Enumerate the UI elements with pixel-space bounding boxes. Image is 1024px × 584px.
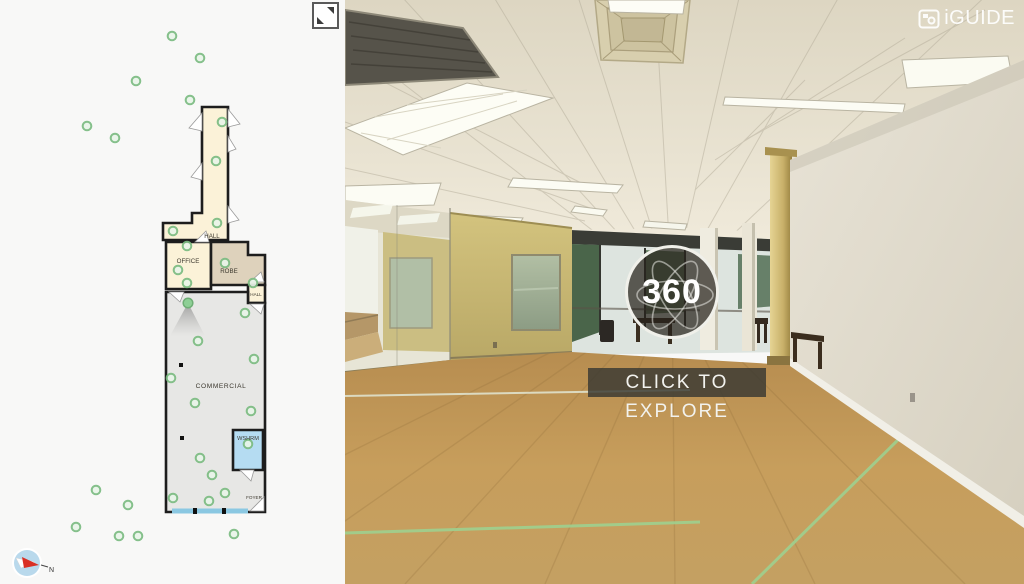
window-mullion xyxy=(222,508,226,514)
panorama-dot[interactable] xyxy=(169,227,178,236)
panorama-dot[interactable] xyxy=(230,530,239,539)
panorama-dot[interactable] xyxy=(205,497,214,506)
panorama-dot[interactable] xyxy=(124,501,133,510)
mirror-wall xyxy=(345,200,450,372)
panorama-dot[interactable] xyxy=(221,259,230,268)
panorama-dot[interactable] xyxy=(196,54,205,63)
room-label-hall: HALL xyxy=(204,233,220,240)
compass-control[interactable]: N xyxy=(8,544,60,582)
panorama-dot[interactable] xyxy=(83,122,92,131)
badge-360[interactable]: 360 xyxy=(625,245,719,339)
room-label-robe: ROBE xyxy=(220,268,238,275)
panorama-dot[interactable] xyxy=(183,242,192,251)
expand-icon xyxy=(314,4,337,27)
panorama-dot[interactable] xyxy=(213,219,222,228)
panorama-dot[interactable] xyxy=(183,279,192,288)
panorama-dot[interactable] xyxy=(250,355,259,364)
panorama-dot[interactable] xyxy=(194,337,203,346)
panorama-dot[interactable] xyxy=(115,532,124,541)
panorama-dot[interactable] xyxy=(247,407,256,416)
badge-360-label: 360 xyxy=(642,273,702,312)
room-label-office: OFFICE xyxy=(177,258,200,265)
panorama-dot[interactable] xyxy=(167,374,176,383)
panorama-dot[interactable] xyxy=(241,309,250,318)
room-label-commercial: COMMERCIAL xyxy=(196,383,247,390)
iguide-tour-app: HALL OFFICE ROBE HALL COMMERCIAL WSHRM F… xyxy=(0,0,1024,584)
room-label-hall-2: HALL xyxy=(250,292,262,297)
iguide-logo-text: iGUIDE xyxy=(944,7,1015,30)
floorplan-drawing: HALL OFFICE ROBE HALL COMMERCIAL WSHRM F… xyxy=(0,0,345,584)
post-marker xyxy=(180,436,184,440)
iguide-logo: iGUIDE xyxy=(918,7,1015,30)
panorama-dot[interactable] xyxy=(212,157,221,166)
window-mullion xyxy=(193,508,197,514)
panorama-dot[interactable] xyxy=(134,532,143,541)
panorama-dot[interactable] xyxy=(111,134,120,143)
floorplan-panel: HALL OFFICE ROBE HALL COMMERCIAL WSHRM F… xyxy=(0,0,345,584)
panorama-dot[interactable] xyxy=(169,494,178,503)
panorama-viewer[interactable]: 360 CLICK TO EXPLORE iGUIDE xyxy=(345,0,1024,584)
window-strip xyxy=(172,509,248,514)
compass-north-label: N xyxy=(49,567,54,574)
panorama-dot[interactable] xyxy=(191,399,200,408)
panorama-dot[interactable] xyxy=(218,118,227,127)
panorama-dot[interactable] xyxy=(168,32,177,41)
panorama-dot[interactable] xyxy=(174,266,183,275)
post-marker xyxy=(179,363,183,367)
fullscreen-toggle-button[interactable] xyxy=(312,2,339,29)
room-label-foyer: FOYER xyxy=(246,495,263,500)
panorama-dot[interactable] xyxy=(249,279,258,288)
panorama-dot[interactable] xyxy=(92,486,101,495)
panorama-dot[interactable] xyxy=(208,471,217,480)
click-to-explore-button[interactable]: CLICK TO EXPLORE xyxy=(588,368,766,397)
back-pillar xyxy=(742,223,755,351)
panorama-dot[interactable] xyxy=(186,96,195,105)
wall-mirror-panel xyxy=(512,255,560,330)
iguide-logo-icon xyxy=(918,9,940,29)
panorama-dot[interactable] xyxy=(221,489,230,498)
partition-wall xyxy=(450,213,572,361)
panorama-dot[interactable] xyxy=(196,454,205,463)
room-label-wshrm: WSHRM xyxy=(237,436,259,442)
panorama-dot-active[interactable] xyxy=(183,298,193,308)
panorama-dot[interactable] xyxy=(132,77,141,86)
panorama-dot[interactable] xyxy=(72,523,81,532)
